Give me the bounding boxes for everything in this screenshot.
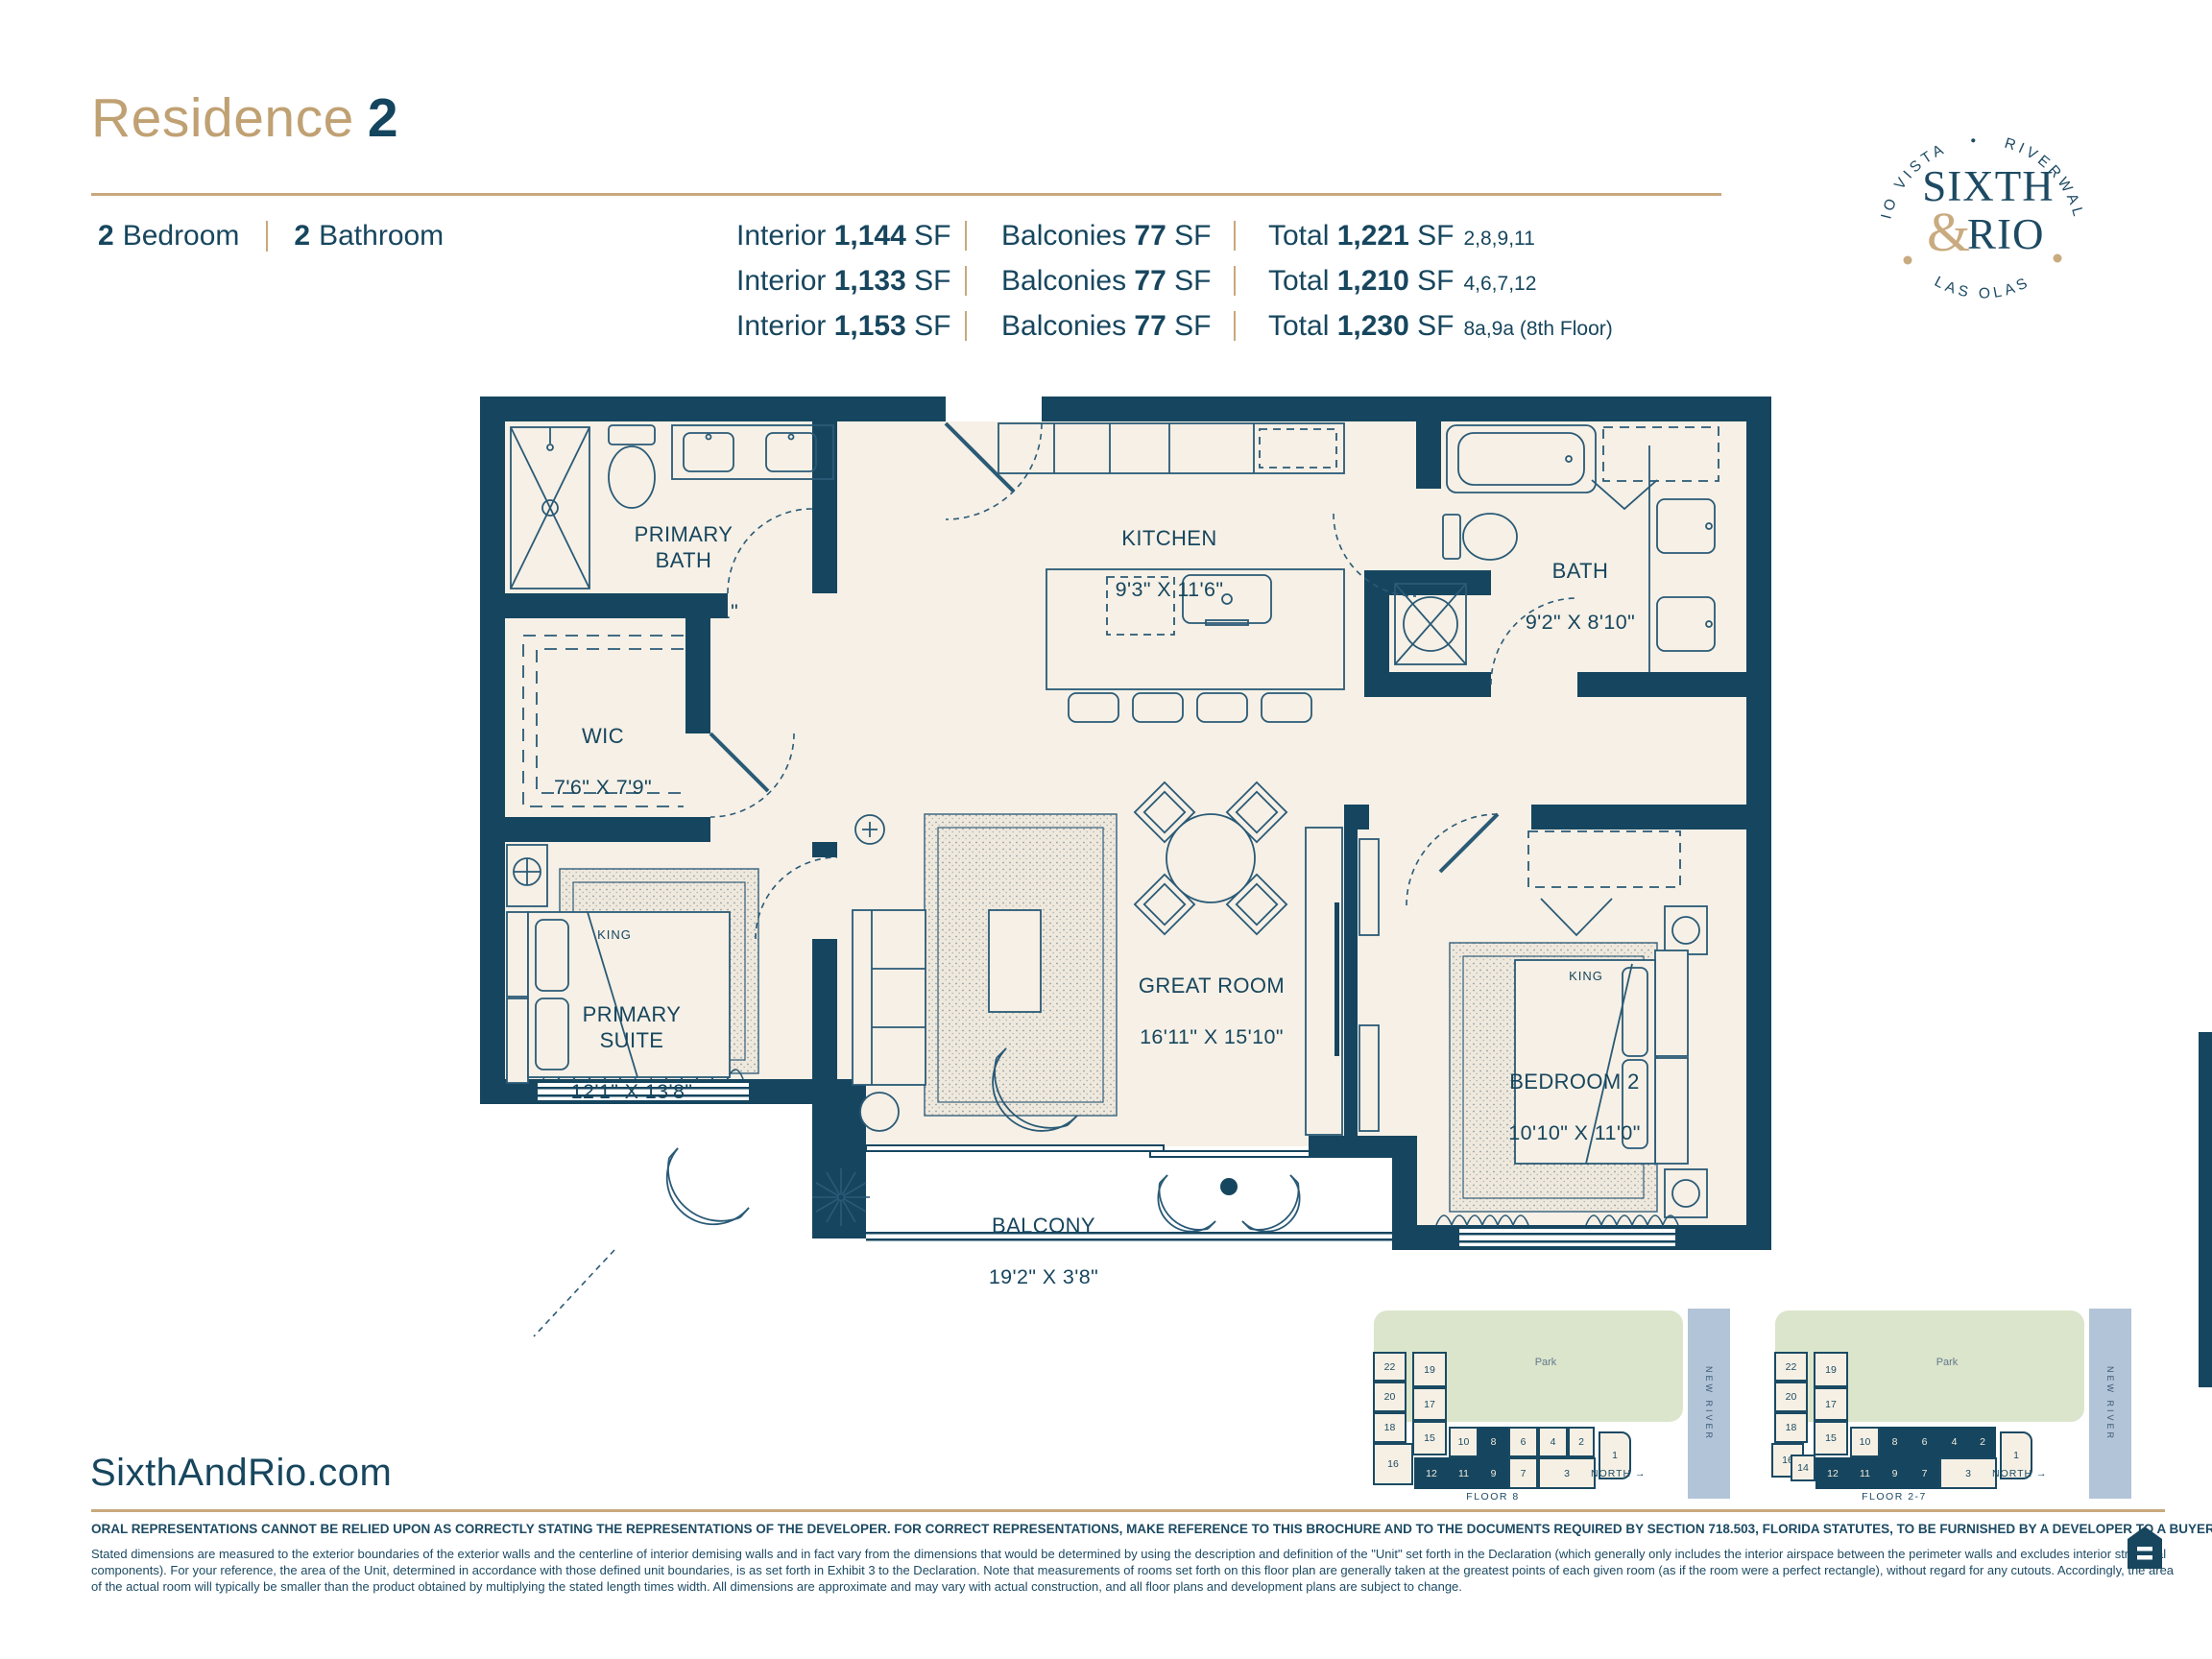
footer-rule [91, 1509, 2165, 1512]
divider [965, 266, 967, 296]
north-arrow: NORTH → [1992, 1468, 2048, 1479]
bed-bath-line: 2 Bedroom 2 Bathroom [98, 220, 444, 252]
keyplan-caption: FLOOR 2-7 [1789, 1491, 2000, 1503]
room-label-wic: WIC 7'6" X 7'9" [554, 697, 652, 827]
balcony-rail [866, 1232, 1392, 1241]
park-label: Park [1913, 1357, 1981, 1368]
bedroom-label: Bedroom [123, 220, 240, 252]
keyplan-unit-8: 8 [1479, 1427, 1508, 1457]
keyplan-unit-6: 6 [1508, 1427, 1538, 1457]
divider [1234, 221, 1236, 251]
room-label-kitchen: KITCHEN 9'3" X 11'6" [1116, 499, 1224, 629]
keyplan-unit-10: 10 [1850, 1427, 1880, 1457]
keyplan-unit-14: 14 [1791, 1455, 1815, 1481]
keyplan-unit-20: 20 [1373, 1382, 1407, 1412]
room-label-primary-suite: PRIMARY SUITE 12'1" X 13'8" [571, 975, 693, 1131]
room-dims: 10'10" X 11'0" [1508, 1120, 1640, 1146]
keyplan-floor-2-7: Park NEW RIVER 22 20 18 16 14 19 17 15 1… [1769, 1309, 2132, 1515]
keyplan-unit-17: 17 [1412, 1387, 1447, 1421]
area-table: Interior 1,144 SF Balconies 77 SF Total … [736, 213, 1613, 349]
logo-dot [1904, 256, 1912, 265]
keyplan-caption: FLOOR 8 [1387, 1491, 1599, 1503]
legal-line-3: of the actual room will typically be sma… [91, 1579, 1462, 1594]
bedroom-count: 2 [98, 220, 114, 252]
king-bed-label: KING [1569, 969, 1603, 983]
keyplan-unit-4: 4 [1939, 1427, 1969, 1457]
room-dims: 9'3" X 11'6" [1116, 577, 1224, 603]
room-dims: 9'2" X 8'10" [1526, 610, 1635, 636]
keyplan-unit-18: 18 [1373, 1412, 1407, 1443]
divider [965, 221, 967, 251]
page-title: Residence2 [91, 86, 398, 150]
area-row-3: Interior 1,153 SF Balconies 77 SF Total … [736, 303, 1613, 349]
park-label: Park [1512, 1357, 1579, 1368]
area-row-2: Interior 1,133 SF Balconies 77 SF Total … [736, 258, 1613, 303]
keyplan-unit-16: 16 [1373, 1443, 1413, 1485]
room-dims: 16'11" X 15'10" [1139, 1024, 1285, 1050]
keyplan-floor-8: Park NEW RIVER 22 20 18 16 19 17 15 10 8… [1368, 1309, 1731, 1515]
website-link[interactable]: SixthAndRio.com [90, 1452, 392, 1495]
bathroom-count: 2 [294, 220, 310, 252]
keyplan-unit-3: 3 [1939, 1457, 1997, 1489]
page-edge-bar [2199, 1032, 2212, 1387]
equal-housing-icon [2127, 1526, 2163, 1570]
keyplan-unit-2: 2 [1969, 1427, 1996, 1457]
room-dims: 19'2" X 3'8" [989, 1264, 1098, 1290]
keyplan-unit-8: 8 [1880, 1427, 1910, 1457]
keyplan-unit-3: 3 [1538, 1457, 1596, 1489]
keyplan-unit-10: 10 [1449, 1427, 1479, 1457]
room-label-primary-bath: PRIMARY BATH 12'1" X 6'1" [629, 495, 738, 651]
room-dims: 7'6" X 7'9" [554, 775, 652, 801]
king-bed-label: KING [597, 927, 632, 942]
unit-numbers: 2,8,9,11 [1463, 228, 1534, 250]
keyplan-unit-2: 2 [1568, 1427, 1595, 1457]
keyplan-unit-20: 20 [1774, 1382, 1808, 1412]
keyplan-unit-12: 12 [1414, 1457, 1449, 1489]
keyplan-unit-22: 22 [1373, 1352, 1407, 1382]
room-dims: 12'1" X 13'8" [571, 1079, 693, 1105]
keyplan-unit-4: 4 [1538, 1427, 1568, 1457]
keyplan-unit-17: 17 [1814, 1387, 1848, 1421]
title-number: 2 [368, 87, 398, 149]
keyplan-unit-6: 6 [1910, 1427, 1939, 1457]
keyplan-unit-11: 11 [1449, 1457, 1479, 1489]
unit-numbers: 8a,9a (8th Floor) [1463, 318, 1612, 340]
logo-arc-bottom: LAS OLAS [1932, 274, 2033, 302]
keyplan-unit-22: 22 [1774, 1352, 1808, 1382]
new-river: NEW RIVER [1688, 1309, 1730, 1499]
logo-ampersand: & [1927, 201, 1970, 263]
keyplan-unit-15: 15 [1814, 1421, 1848, 1455]
area-row-1: Interior 1,144 SF Balconies 77 SF Total … [736, 213, 1613, 258]
legal-line-2: components). For your reference, the are… [91, 1563, 2174, 1577]
divider [965, 311, 967, 341]
logo-dot [2054, 254, 2062, 263]
keyplan-unit-9: 9 [1479, 1457, 1508, 1489]
keyplan-unit-19: 19 [1412, 1352, 1447, 1387]
divider [266, 221, 268, 252]
logo-word-rio: RIO [1967, 210, 2045, 258]
keyplan-unit-11: 11 [1850, 1457, 1880, 1489]
keyplan-unit-15: 15 [1412, 1421, 1447, 1455]
keyplan-unit-9: 9 [1880, 1457, 1910, 1489]
divider [1234, 311, 1236, 341]
room-label-great-room: GREAT ROOM 16'11" X 15'10" [1139, 947, 1285, 1076]
room-label-balcony: BALCONY 19'2" X 3'8" [989, 1187, 1098, 1316]
brochure-page: Residence2 2 Bedroom 2 Bathroom Interior… [0, 0, 2212, 1659]
bathroom-label: Bathroom [319, 220, 444, 252]
north-arrow: NORTH → [1591, 1468, 1647, 1479]
divider [1234, 266, 1236, 296]
header-rule [91, 193, 1721, 196]
unit-numbers: 4,6,7,12 [1463, 273, 1536, 295]
new-river: NEW RIVER [2089, 1309, 2131, 1499]
sixth-and-rio-logo: RIO VISTA • RIVERWALK LAS OLAS SIXTH & R… [1867, 89, 2098, 320]
title-word: Residence [91, 87, 354, 149]
room-dims: 12'1" X 6'1" [629, 599, 738, 625]
keyplan-unit-12: 12 [1815, 1457, 1850, 1489]
legal-line-1: Stated dimensions are measured to the ex… [91, 1547, 2166, 1561]
keyplan-unit-19: 19 [1814, 1352, 1848, 1387]
room-label-bath: BATH 9'2" X 8'10" [1526, 532, 1635, 661]
keyplan-unit-18: 18 [1774, 1412, 1808, 1443]
legal-disclaimer-bold: ORAL REPRESENTATIONS CANNOT BE RELIED UP… [91, 1522, 2212, 1536]
keyplan-unit-7: 7 [1508, 1457, 1538, 1489]
keyplan-unit-7: 7 [1910, 1457, 1939, 1489]
room-label-bedroom-2: BEDROOM 2 10'10" X 11'0" [1508, 1043, 1640, 1172]
